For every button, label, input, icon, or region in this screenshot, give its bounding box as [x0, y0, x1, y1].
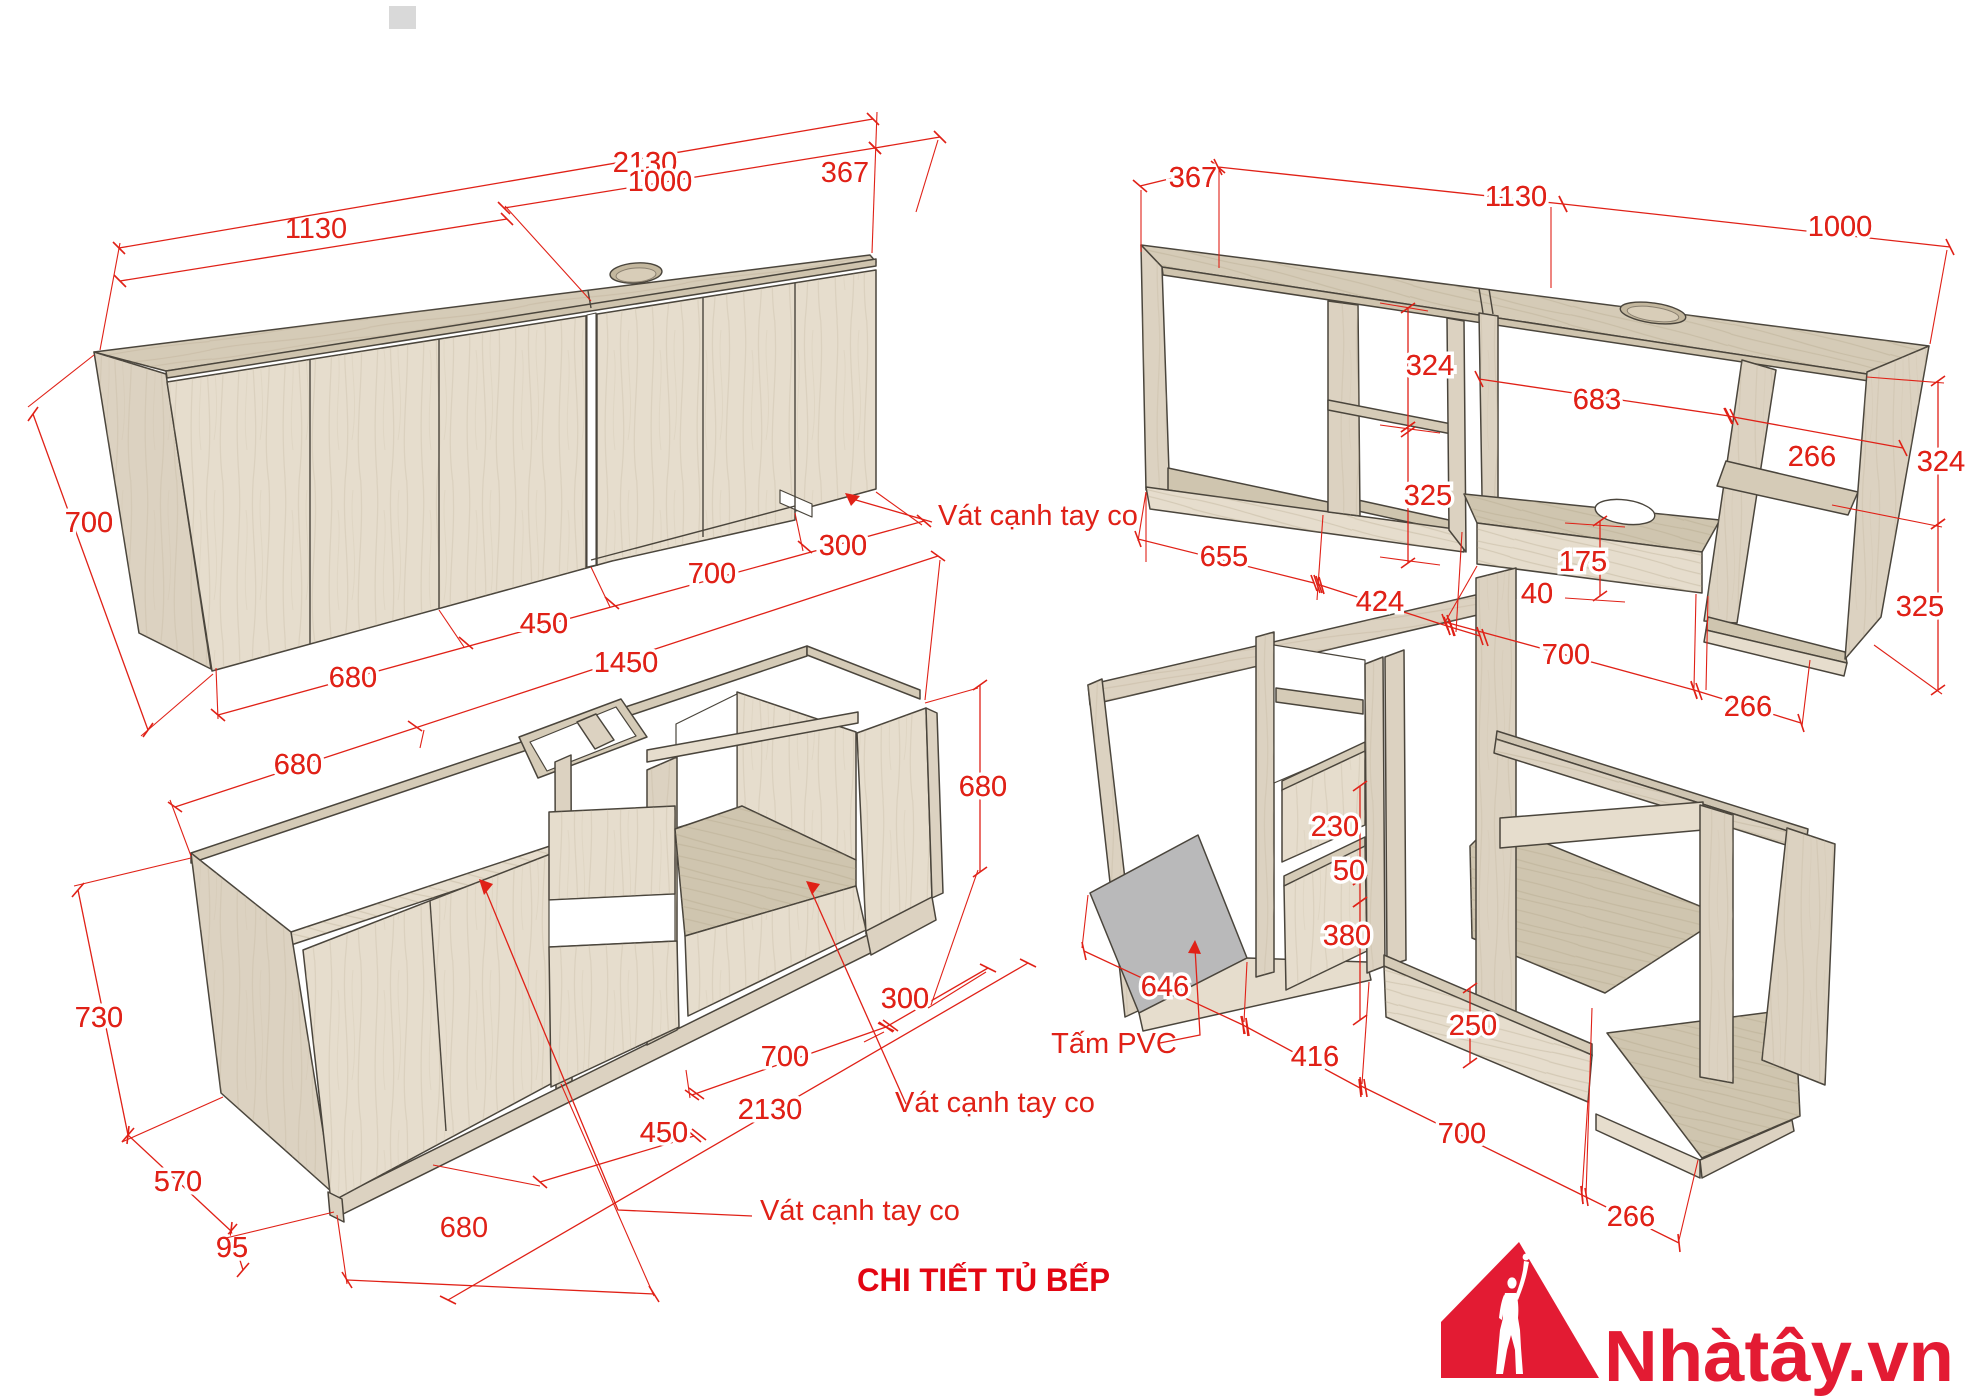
svg-text:40: 40 — [1521, 578, 1553, 610]
svg-text:1000: 1000 — [1808, 211, 1873, 243]
svg-text:250: 250 — [1449, 1010, 1497, 1042]
svg-text:655: 655 — [1200, 541, 1248, 573]
svg-text:680: 680 — [959, 771, 1007, 803]
svg-text:424: 424 — [1356, 586, 1404, 618]
svg-text:367: 367 — [821, 157, 869, 189]
svg-text:300: 300 — [819, 530, 867, 562]
svg-text:1130: 1130 — [285, 213, 347, 245]
svg-text:325: 325 — [1404, 480, 1452, 512]
svg-text:700: 700 — [688, 558, 736, 590]
svg-text:700: 700 — [1542, 639, 1590, 671]
svg-text:325: 325 — [1896, 591, 1944, 623]
svg-text:Vát cạnh tay co: Vát cạnh tay co — [938, 500, 1138, 532]
svg-text:50: 50 — [1333, 855, 1365, 887]
svg-text:730: 730 — [75, 1002, 123, 1034]
svg-text:175: 175 — [1559, 546, 1607, 578]
svg-text:367: 367 — [1169, 162, 1217, 194]
svg-text:1000: 1000 — [628, 166, 693, 198]
svg-text:Vát cạnh tay co: Vát cạnh tay co — [760, 1195, 960, 1227]
svg-text:646: 646 — [1141, 971, 1189, 1003]
svg-text:Vát cạnh tay co: Vát cạnh tay co — [895, 1087, 1095, 1119]
svg-text:680: 680 — [274, 749, 322, 781]
svg-text:230: 230 — [1311, 811, 1359, 843]
svg-text:266: 266 — [1607, 1201, 1655, 1233]
svg-text:680: 680 — [329, 662, 377, 694]
svg-text:1450: 1450 — [594, 647, 659, 679]
svg-text:Tấm PVC: Tấm PVC — [1051, 1028, 1177, 1060]
svg-text:CHI TIẾT TỦ BẾP: CHI TIẾT TỦ BẾP — [857, 1262, 1110, 1298]
svg-text:450: 450 — [520, 608, 568, 640]
svg-text:700: 700 — [761, 1041, 809, 1073]
svg-text:324: 324 — [1406, 350, 1454, 382]
svg-text:700: 700 — [1438, 1118, 1486, 1150]
svg-text:1130: 1130 — [1485, 181, 1547, 213]
svg-text:416: 416 — [1291, 1041, 1339, 1073]
svg-text:700: 700 — [65, 507, 113, 539]
svg-text:300: 300 — [881, 983, 929, 1015]
svg-text:570: 570 — [154, 1166, 202, 1198]
svg-text:324: 324 — [1917, 446, 1965, 478]
svg-text:2130: 2130 — [738, 1094, 803, 1126]
svg-text:380: 380 — [1323, 920, 1371, 952]
svg-text:683: 683 — [1573, 384, 1621, 416]
svg-text:450: 450 — [640, 1117, 688, 1149]
svg-text:680: 680 — [440, 1212, 488, 1244]
svg-text:Nhàtây.vn: Nhàtây.vn — [1604, 1317, 1954, 1397]
svg-text:266: 266 — [1788, 441, 1836, 473]
svg-text:266: 266 — [1724, 691, 1772, 723]
